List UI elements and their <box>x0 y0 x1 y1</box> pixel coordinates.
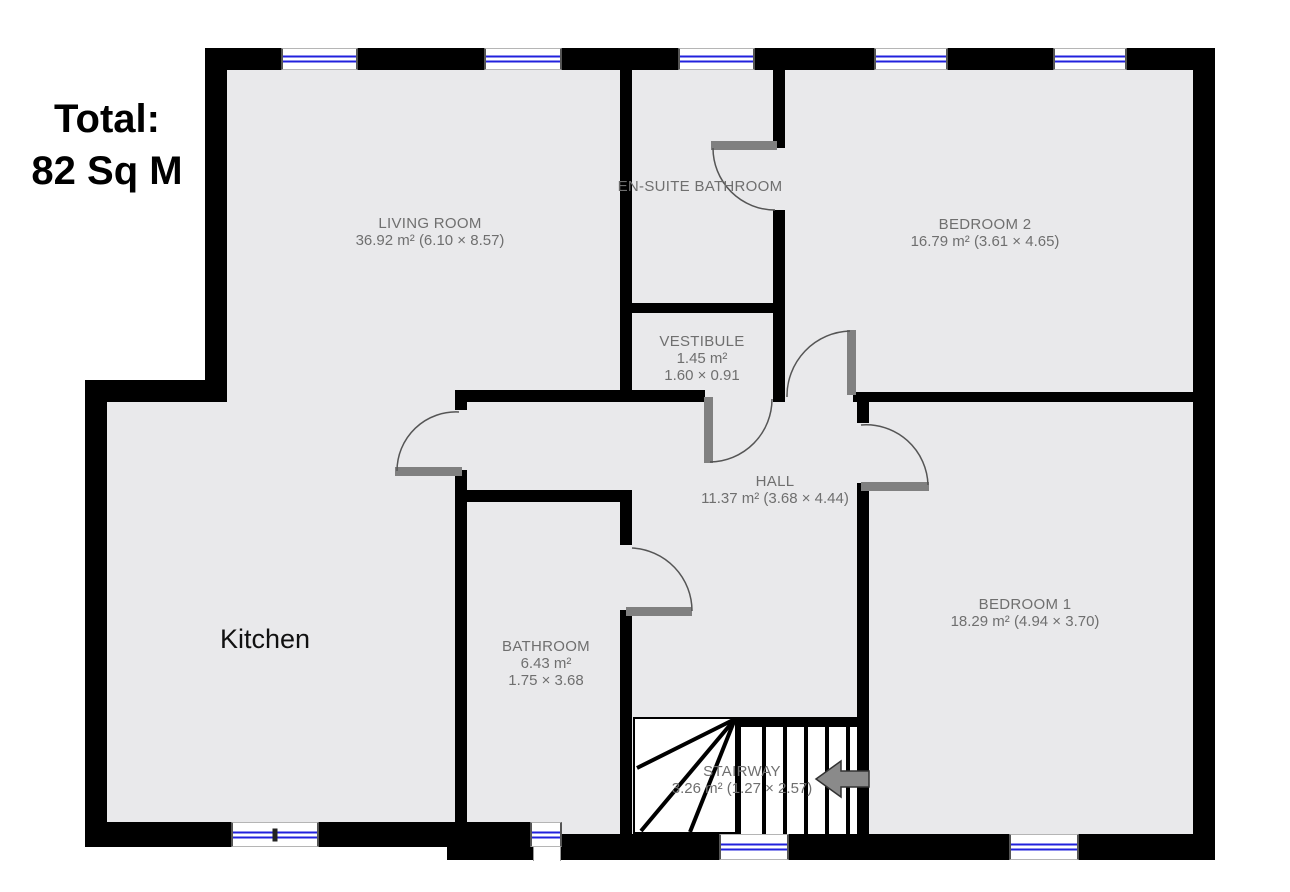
room-label-bedroom2: BEDROOM 2 16.79 m² (3.61 × 4.65) <box>911 216 1060 250</box>
door-arc-vestibule <box>710 399 772 462</box>
door-arc-kitchen <box>397 412 459 471</box>
total-title: Total: <box>31 93 182 145</box>
total-area-label: Total: 82 Sq M <box>31 93 182 197</box>
room-label-en-suite: EN-SUITE BATHROOM <box>618 178 783 195</box>
room-label-stairway: STAIRWAY 3.26 m² (1.27 × 2.57) <box>672 763 813 797</box>
room-label-bathroom: BATHROOM 6.43 m² 1.75 × 3.68 <box>502 638 590 689</box>
room-label-bedroom1: BEDROOM 1 18.29 m² (4.94 × 3.70) <box>951 596 1100 630</box>
room-label-vestibule: VESTIBULE 1.45 m² 1.60 × 0.91 <box>659 333 744 384</box>
door-arc-bathroom <box>632 548 692 611</box>
stair-direction-arrow-icon <box>816 761 869 797</box>
door-arc-bedroom1 <box>861 425 928 485</box>
door-arc-bedroom2 <box>787 331 850 397</box>
floor-plan: Total: 82 Sq M LIVING ROOM 36.92 m² (6.1… <box>0 0 1290 892</box>
room-label-living-room: LIVING ROOM 36.92 m² (6.10 × 8.57) <box>356 215 505 249</box>
total-value: 82 Sq M <box>31 145 182 197</box>
room-label-kitchen: Kitchen <box>220 624 310 654</box>
plan-linework <box>0 0 1290 892</box>
room-label-hall: HALL 11.37 m² (3.68 × 4.44) <box>701 473 849 507</box>
